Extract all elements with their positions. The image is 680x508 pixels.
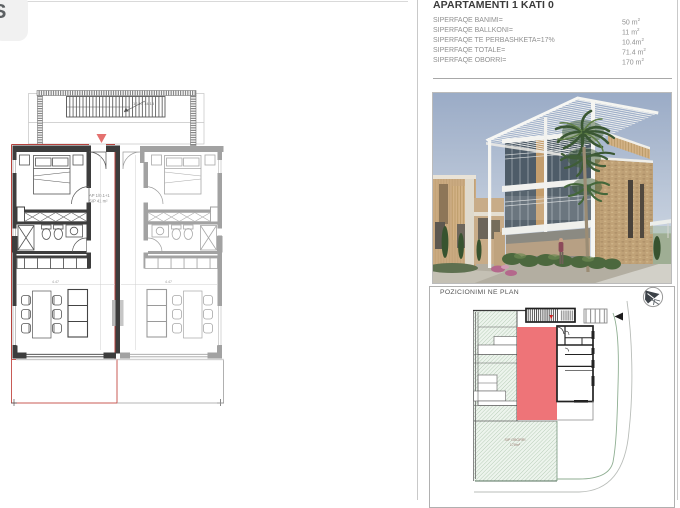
- svg-text:170m²: 170m²: [510, 443, 521, 447]
- svg-text:SIP OBORRI: SIP OBORRI: [505, 438, 526, 442]
